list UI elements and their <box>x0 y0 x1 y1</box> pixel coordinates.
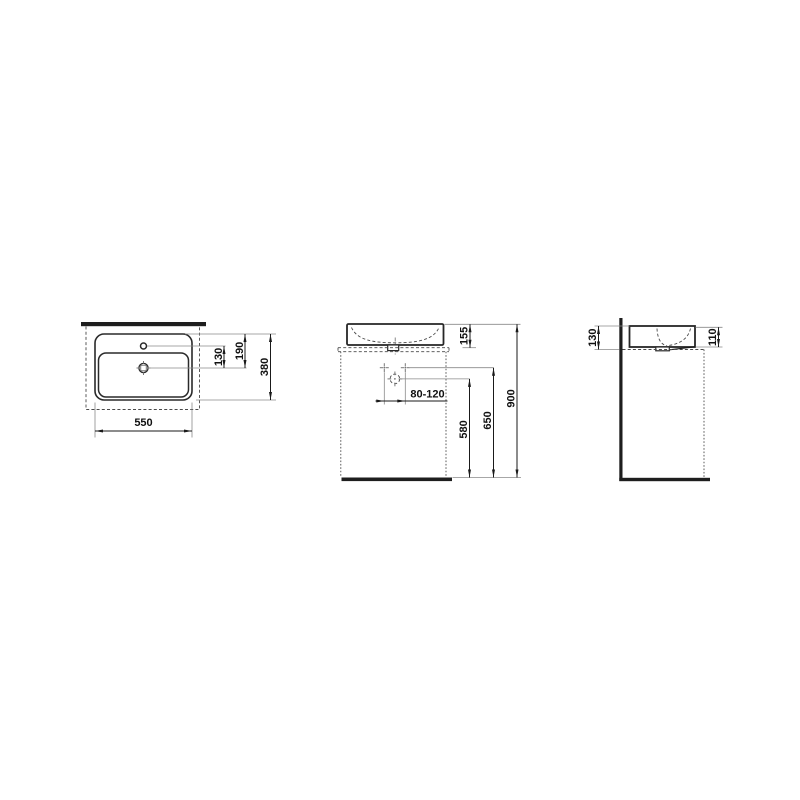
side-view: 130 110 <box>587 318 722 481</box>
fixing-hole-icon-right <box>401 363 410 372</box>
dim-label-side-130: 130 <box>587 329 599 347</box>
dim-label-front-900: 900 <box>506 389 518 407</box>
plan-view: 130 190 380 550 <box>81 322 276 438</box>
dimension-rim-to-drain: 190 <box>234 334 247 368</box>
dim-label-front-80-120: 80-120 <box>410 388 444 400</box>
dim-label-side-110: 110 <box>707 328 719 346</box>
basin-body-front <box>347 324 444 345</box>
dimension-basin-height: 155 <box>459 324 472 347</box>
dimension-drain-height: 580 <box>458 379 471 478</box>
dimension-rim-height: 900 <box>506 324 519 477</box>
dimension-depth: 380 <box>259 334 272 400</box>
wall-line <box>81 322 206 326</box>
tap-hole-icon <box>141 343 147 349</box>
dim-label-front-580: 580 <box>458 420 470 438</box>
dimension-back-height: 130 <box>587 326 629 350</box>
dim-label-plan-190: 190 <box>234 342 246 360</box>
dim-label-plan-130: 130 <box>213 348 225 366</box>
wall-line-side <box>619 318 622 481</box>
waste-outlet-icon <box>388 372 403 387</box>
dimension-drain-offset: 80-120 <box>376 388 448 402</box>
floor-line-side <box>619 478 710 481</box>
drawing-canvas: 130 190 380 550 <box>0 0 800 800</box>
drain-fitting-side <box>656 347 670 351</box>
dimension-front-height: 110 <box>696 327 723 347</box>
dimension-width: 550 <box>95 403 192 438</box>
dimension-fixing-height: 650 <box>482 368 495 478</box>
dim-label-front-155: 155 <box>459 327 471 345</box>
floor-line-front <box>342 478 453 482</box>
dimension-tap-to-drain: 130 <box>213 346 226 368</box>
dim-label-plan-380: 380 <box>259 358 271 376</box>
fixing-hole-icon-left <box>380 363 389 372</box>
front-view: 155 80-120 580 650 900 <box>338 324 521 481</box>
dim-label-front-650: 650 <box>482 411 494 429</box>
dim-label-plan-550: 550 <box>134 417 152 429</box>
technical-drawing: 130 190 380 550 <box>0 0 800 800</box>
